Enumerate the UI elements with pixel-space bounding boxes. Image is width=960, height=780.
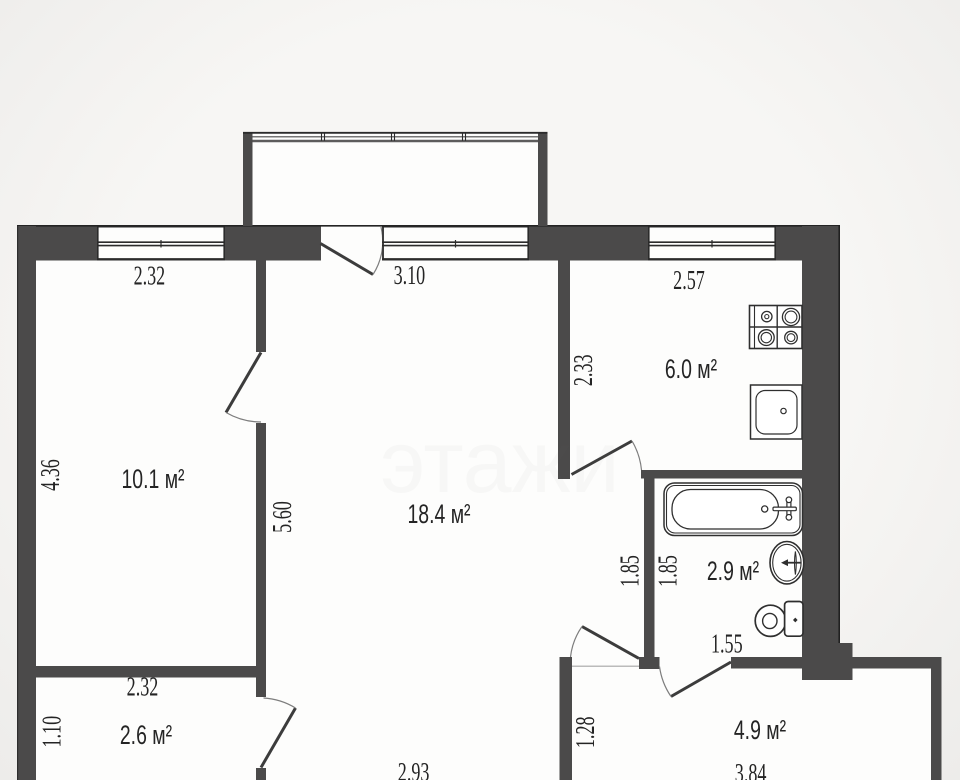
svg-text:1.10: 1.10 bbox=[37, 716, 66, 748]
svg-text:2.32: 2.32 bbox=[134, 261, 166, 290]
svg-text:3.84: 3.84 bbox=[735, 759, 767, 780]
svg-text:2.9 м²: 2.9 м² bbox=[707, 556, 759, 586]
svg-text:5.60: 5.60 bbox=[268, 501, 297, 533]
svg-text:4.36: 4.36 bbox=[36, 459, 65, 491]
svg-text:2.6 м²: 2.6 м² bbox=[120, 720, 172, 750]
svg-text:1.28: 1.28 bbox=[570, 716, 599, 748]
svg-text:10.1 м²: 10.1 м² bbox=[121, 464, 184, 494]
svg-text:2.32: 2.32 bbox=[127, 672, 159, 701]
svg-text:18.4 м²: 18.4 м² bbox=[407, 499, 470, 529]
svg-text:1.85: 1.85 bbox=[615, 555, 644, 587]
svg-text:6.0 м²: 6.0 м² bbox=[665, 354, 717, 384]
svg-text:этажи: этажи bbox=[380, 412, 619, 511]
svg-text:1.85: 1.85 bbox=[653, 555, 682, 587]
svg-text:4.9 м²: 4.9 м² bbox=[734, 715, 786, 745]
svg-text:1.55: 1.55 bbox=[711, 629, 743, 658]
svg-text:3.10: 3.10 bbox=[394, 261, 426, 290]
svg-text:2.33: 2.33 bbox=[569, 354, 598, 386]
svg-text:2.57: 2.57 bbox=[673, 266, 705, 295]
svg-text:2.93: 2.93 bbox=[398, 758, 430, 780]
